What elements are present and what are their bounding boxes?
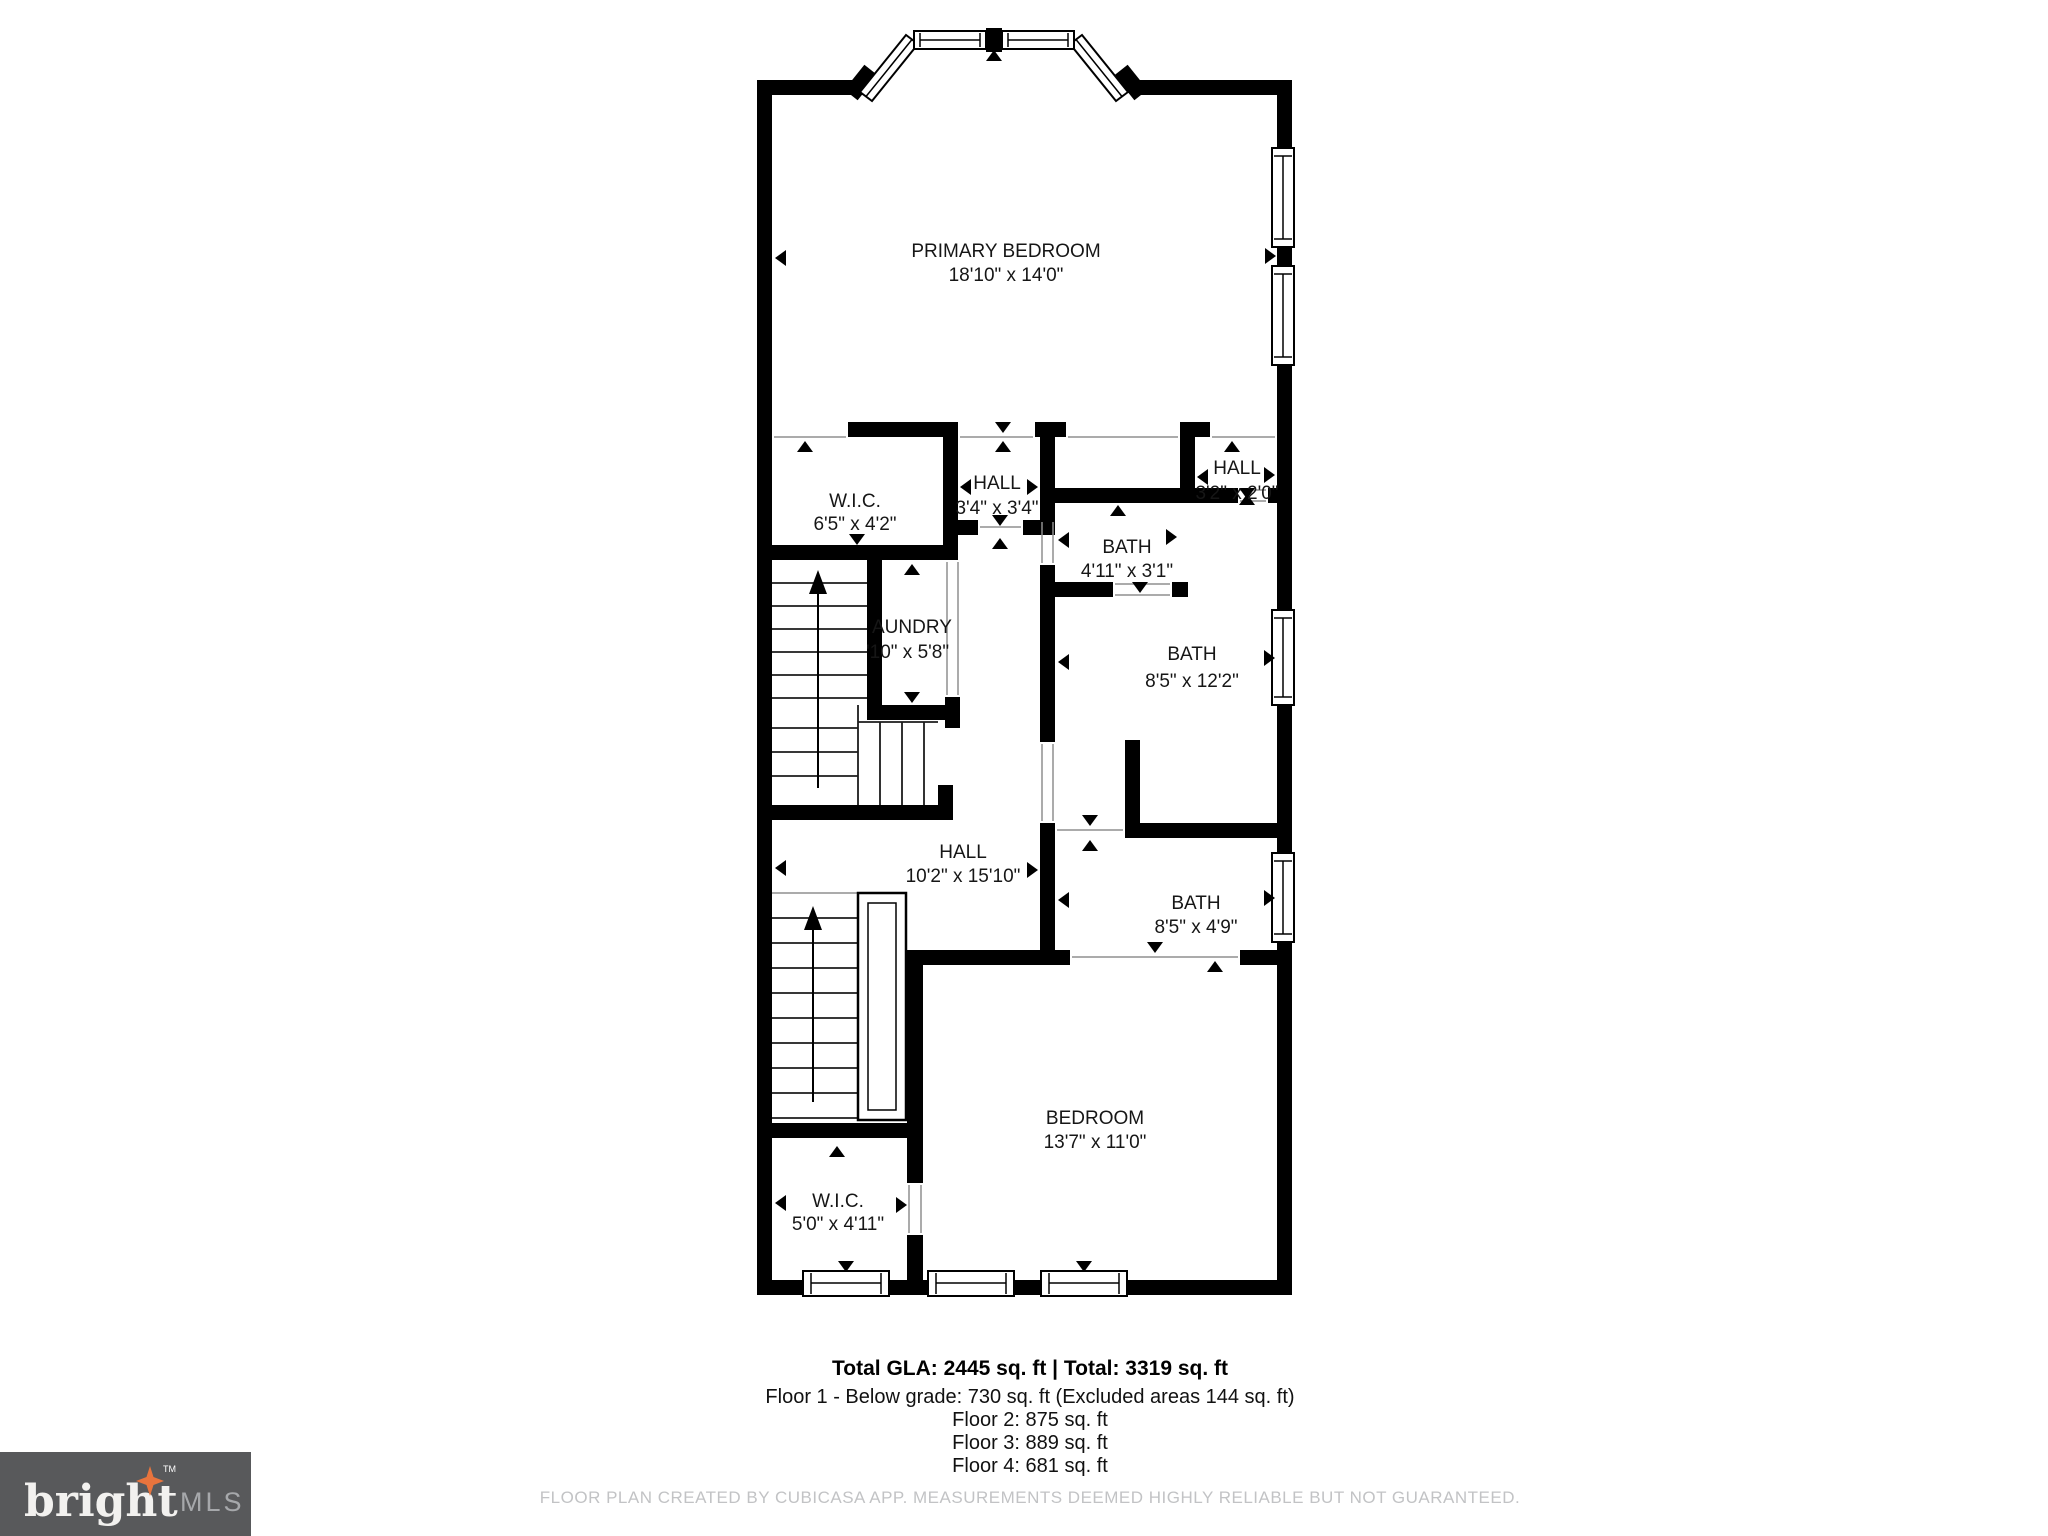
- wall-segment: [1180, 422, 1210, 437]
- wall-segment: [958, 520, 978, 535]
- wall-segment: [1180, 437, 1195, 503]
- room-label-bath-primary: BATH: [1167, 644, 1216, 665]
- door-marker-up: [1207, 961, 1223, 972]
- wall-segment: [1125, 823, 1277, 838]
- room-label-bath-hall: BATH: [1171, 893, 1220, 914]
- wall-segment: [887, 1280, 930, 1295]
- wall-segment: [1040, 422, 1055, 520]
- floor3-area-text: Floor 3: 889 sq. ft: [952, 1432, 1108, 1454]
- floor-plan-drawing: PRIMARY BEDROOM 18'10" x 14'0" W.I.C. 6'…: [0, 0, 2048, 1536]
- room-dims-hall-upper: 3'4" x 3'4": [955, 498, 1038, 519]
- wall-segment: [757, 805, 953, 820]
- room-dims-bedroom: 13'7" x 11'0": [1044, 1132, 1147, 1153]
- door-marker-right: [1166, 529, 1177, 545]
- wall-segment: [848, 422, 958, 437]
- wall-segment: [757, 1123, 923, 1138]
- floor4-area-text: Floor 4: 681 sq. ft: [952, 1455, 1108, 1477]
- logo-mls-text: MLS: [180, 1487, 245, 1517]
- room-dims-bath-primary: 8'5" x 12'2": [1145, 671, 1239, 692]
- door-marker-down: [1147, 942, 1163, 953]
- wall-segment: [938, 785, 953, 805]
- door-marker-left: [775, 860, 786, 876]
- room-label-hall-upper: HALL: [973, 473, 1021, 494]
- door-marker-right: [896, 1197, 907, 1213]
- door-marker-up: [1224, 441, 1240, 452]
- room-label-laundry: AUNDRY: [872, 617, 952, 638]
- wall-segment: [757, 1280, 805, 1295]
- wall-segment: [907, 950, 1070, 965]
- room-dims-wic-upper: 6'5" x 4'2": [813, 514, 896, 535]
- wall-segment: [1277, 80, 1292, 150]
- door-marker-left: [1058, 532, 1069, 548]
- wall-segment: [1277, 363, 1292, 612]
- bright-mls-logo: bright TM MLS: [0, 1452, 251, 1536]
- wall-segment: [943, 422, 958, 545]
- room-dims-bath-hall: 8'5" x 4'9": [1154, 917, 1237, 938]
- room-label-primary-bedroom: PRIMARY BEDROOM: [911, 241, 1100, 262]
- wall-segment: [1240, 950, 1277, 965]
- room-label-wic-lower: W.I.C.: [812, 1191, 864, 1212]
- door-marker-down: [904, 692, 920, 703]
- disclaimer-text: FLOOR PLAN CREATED BY CUBICASA APP. MEAS…: [540, 1488, 1520, 1507]
- room-label-bath-wc: BATH: [1102, 537, 1151, 558]
- wall-segment: [1040, 565, 1055, 742]
- door-marker-down: [1132, 582, 1148, 593]
- wall-segment: [867, 705, 947, 720]
- door-marker-right: [1027, 479, 1038, 495]
- room-label-hall-right: HALL: [1213, 458, 1261, 479]
- room-dims-bath-wc: 4'11" x 3'1": [1081, 561, 1173, 582]
- door-marker-left: [1058, 654, 1069, 670]
- door-marker-up: [1082, 840, 1098, 851]
- wall-segment: [1040, 823, 1055, 950]
- bay-mullion: [986, 28, 1002, 52]
- door-marker-down: [1082, 815, 1098, 826]
- wall-segment: [757, 80, 772, 1295]
- wall-segment: [1023, 520, 1055, 535]
- door-marker-left: [775, 1195, 786, 1211]
- door-marker-left: [775, 250, 786, 266]
- door-marker-up: [1110, 505, 1126, 516]
- logo-tm-text: TM: [163, 1464, 176, 1474]
- door-marker-up: [995, 441, 1011, 452]
- room-dims-hall-main: 10'2" x 15'10": [906, 866, 1021, 887]
- wall-segment: [1125, 1280, 1292, 1295]
- wall-segment: [945, 697, 960, 728]
- door-marker-down: [995, 422, 1011, 433]
- door-marker-up: [797, 441, 813, 452]
- wall-segment: [772, 545, 958, 560]
- door-marker-right: [1265, 248, 1276, 264]
- staircase-lower: [772, 893, 906, 1120]
- wall-segment: [907, 1235, 923, 1280]
- floor1-area-text: Floor 1 - Below grade: 730 sq. ft (Exclu…: [765, 1386, 1294, 1408]
- door-marker-up: [829, 1146, 845, 1157]
- door-marker-left: [1058, 892, 1069, 908]
- wall-segment: [1055, 582, 1113, 597]
- wall-segment: [1172, 582, 1188, 597]
- door-marker-down: [849, 534, 865, 545]
- wall-segment: [1012, 1280, 1043, 1295]
- door-marker-right: [1264, 467, 1275, 483]
- wall-segment: [1277, 940, 1292, 1295]
- stair-railing: [858, 893, 906, 1120]
- floor-plan-page: PRIMARY BEDROOM 18'10" x 14'0" W.I.C. 6'…: [0, 0, 2048, 1536]
- stair-up-arrow: [809, 570, 827, 594]
- floor2-area-text: Floor 2: 875 sq. ft: [952, 1409, 1108, 1431]
- room-dims-laundry: '10" x 5'8": [866, 642, 949, 663]
- room-label-bedroom: BEDROOM: [1046, 1108, 1144, 1129]
- door-marker-left: [960, 479, 971, 495]
- wall-segment: [1277, 703, 1292, 855]
- door-marker-up: [992, 538, 1008, 549]
- room-dims-wic-lower: 5'0" x 4'11": [792, 1214, 884, 1235]
- area-summary: Total GLA: 2445 sq. ft | Total: 3319 sq.…: [540, 1357, 1520, 1507]
- staircase-upper: [772, 570, 938, 805]
- door-marker-right: [1027, 862, 1038, 878]
- wall-segment: [1277, 245, 1292, 268]
- room-label-wic-upper: W.I.C.: [829, 491, 881, 512]
- room-dims-primary-bedroom: 18'10" x 14'0": [949, 265, 1064, 286]
- room-label-hall-main: HALL: [939, 842, 987, 863]
- total-gla-text: Total GLA: 2445 sq. ft | Total: 3319 sq.…: [832, 1357, 1228, 1380]
- room-dims-hall-right: 3'2" x 2'0": [1195, 483, 1278, 504]
- door-marker-up: [904, 564, 920, 575]
- wall-segment: [1135, 80, 1292, 95]
- wall-segment: [907, 950, 923, 1183]
